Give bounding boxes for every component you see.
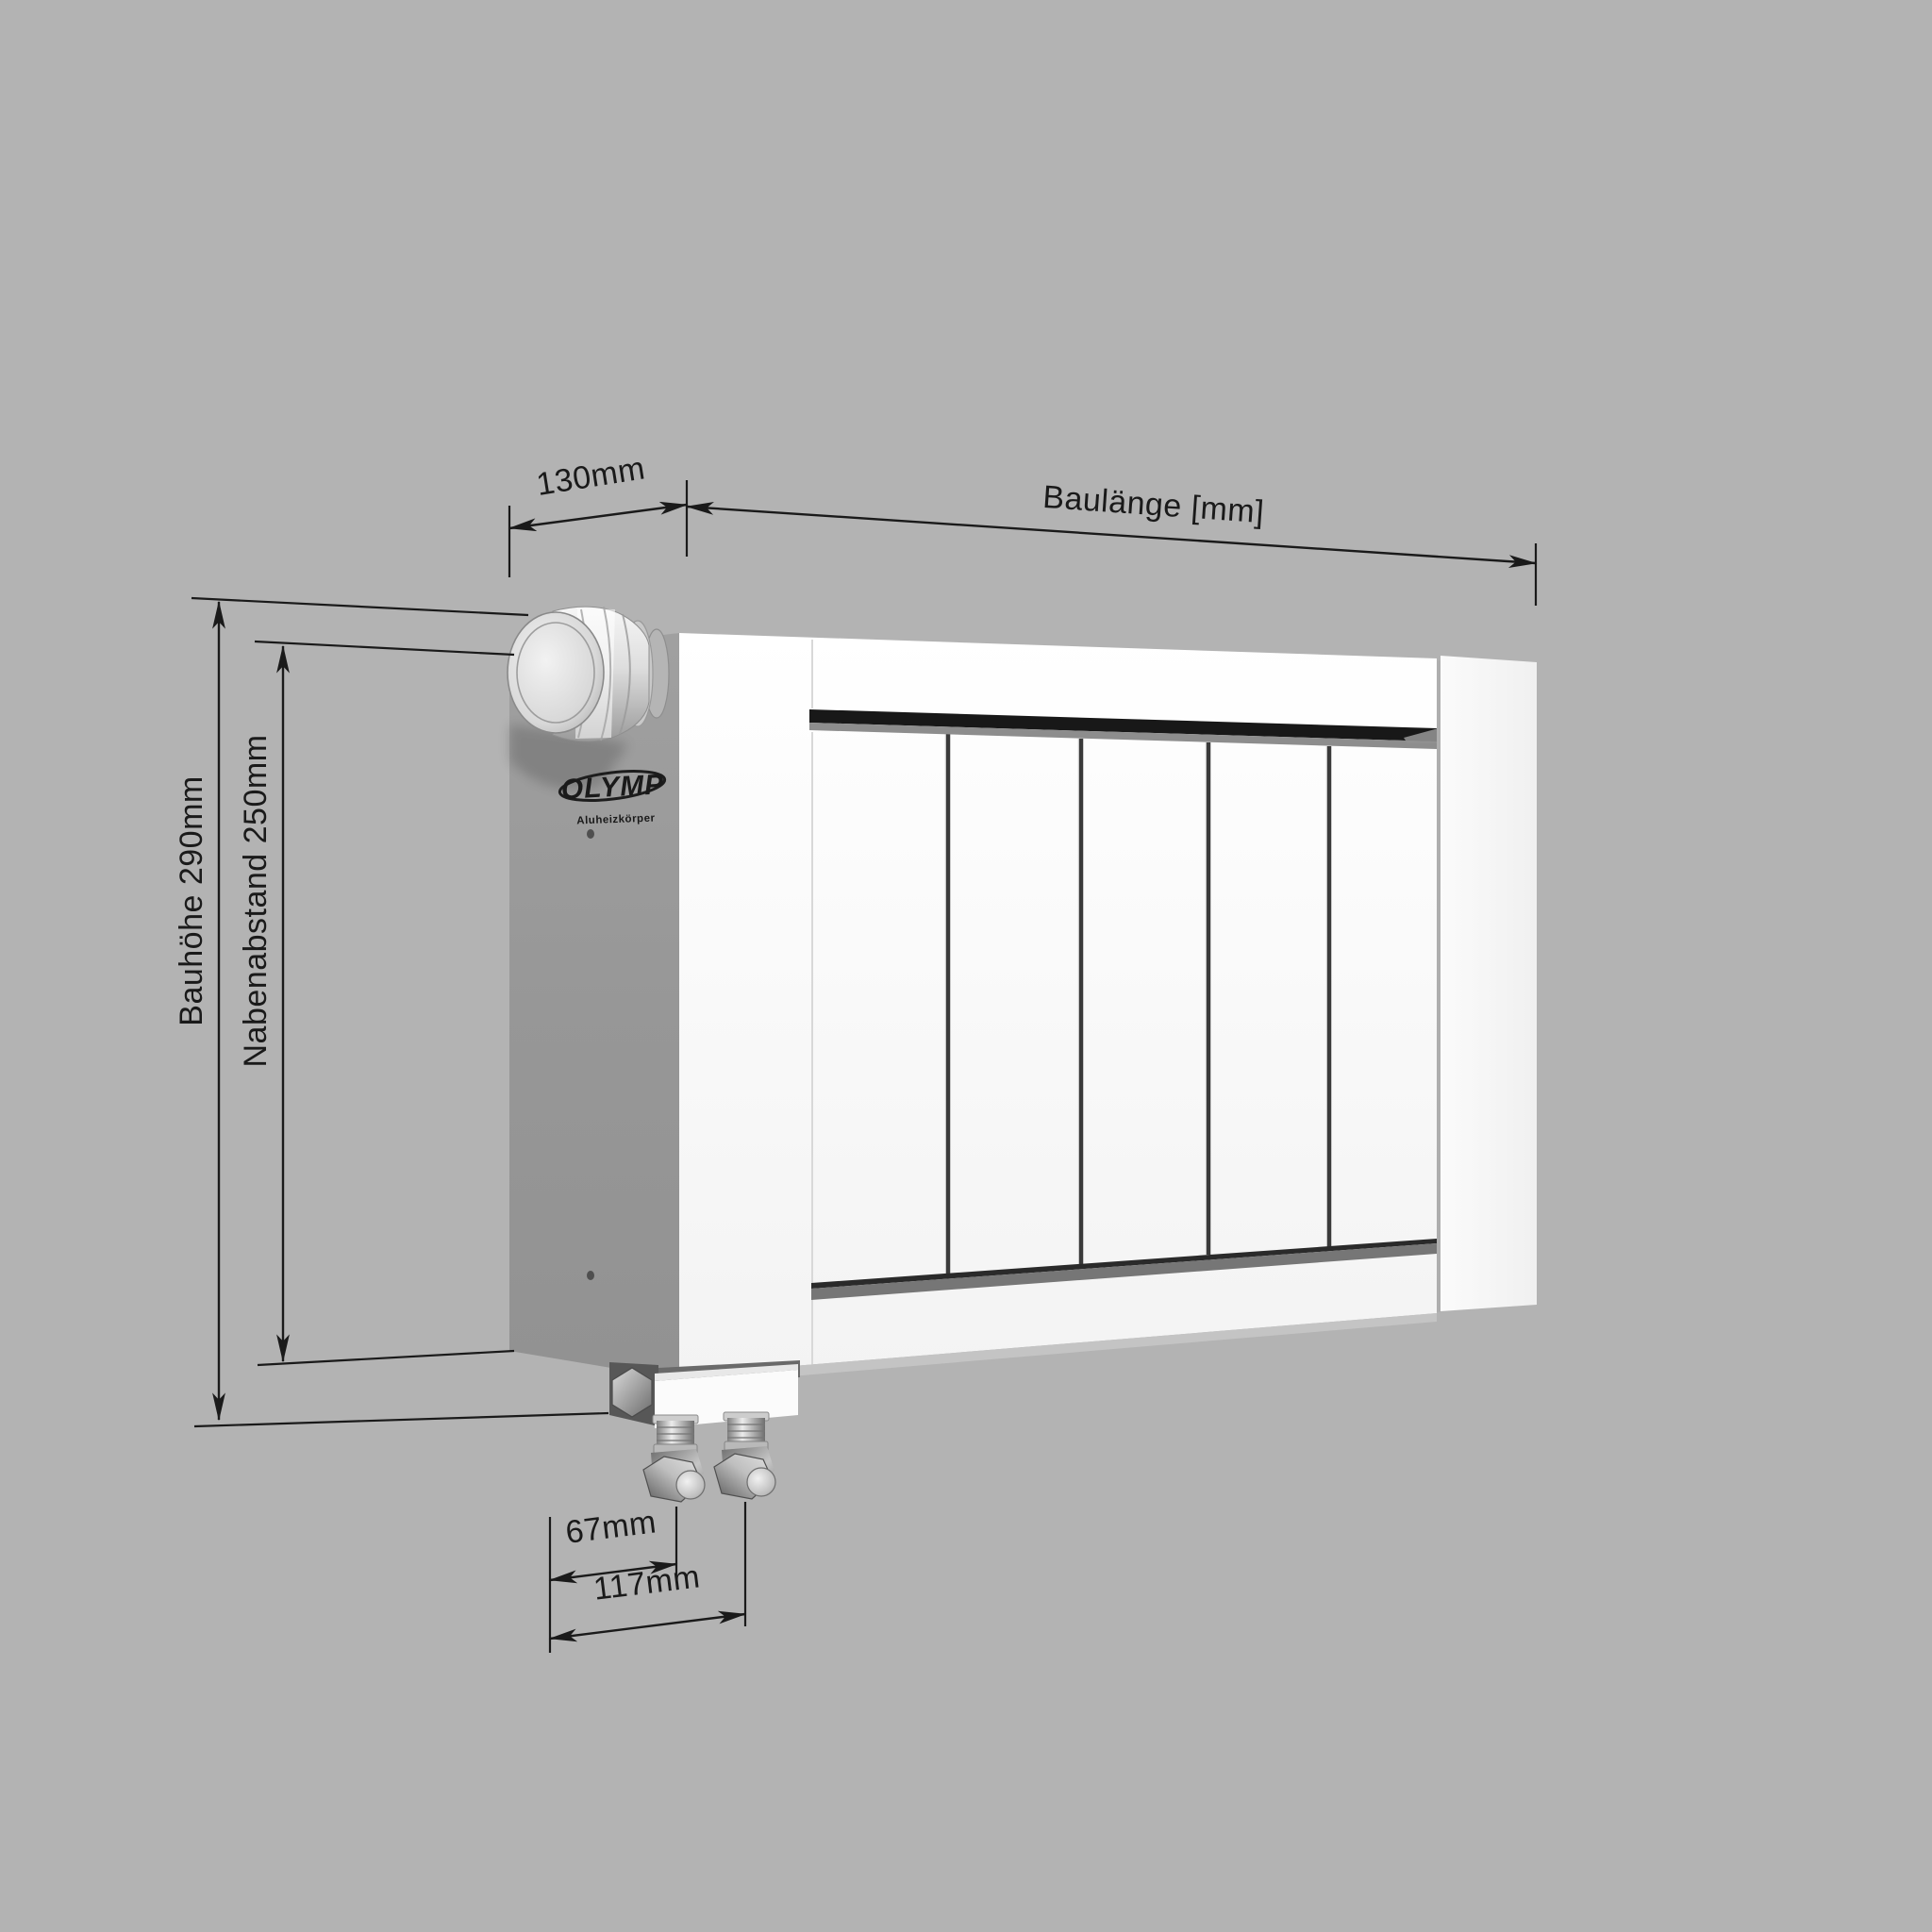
dimension-drawing: OLYMP Aluheizkörper (0, 0, 1932, 1932)
mounting-hole-top (587, 829, 594, 839)
radiator-front (679, 633, 1439, 1386)
dimension-build-height-label: Bauhöhe 290mm (174, 775, 209, 1025)
right-end-panel (1441, 656, 1537, 1311)
radiator-technical-drawing: OLYMP Aluheizkörper (0, 0, 1932, 1932)
thermostat-valve-knob (508, 607, 669, 741)
mounting-hole-bottom (587, 1271, 594, 1280)
knob-face (508, 612, 604, 733)
brand-name: OLYMP (560, 769, 665, 806)
dimension-hub-spacing-label: Nabenabstand 250mm (238, 734, 274, 1067)
radiator-side-panel: OLYMP Aluheizkörper (509, 633, 679, 1379)
